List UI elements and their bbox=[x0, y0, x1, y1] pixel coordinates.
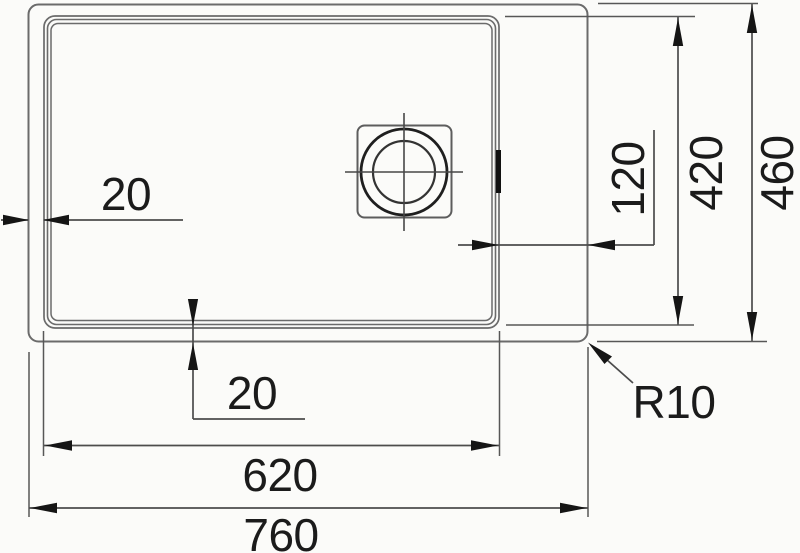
arrowhead bbox=[588, 240, 615, 250]
dim-label-overall-width: 760 bbox=[243, 512, 318, 553]
sink-technical-drawing bbox=[0, 0, 800, 553]
arrowhead bbox=[3, 215, 29, 225]
arrowhead bbox=[188, 343, 198, 370]
dim-label-rim-bottom: 20 bbox=[227, 370, 277, 416]
arrowhead bbox=[30, 503, 57, 513]
dim-label-bowl-height: 420 bbox=[683, 135, 729, 210]
dim-label-rim-left: 20 bbox=[101, 171, 151, 217]
dim-label-bowl-to-edge: 120 bbox=[605, 141, 651, 216]
drain-assembly bbox=[345, 113, 463, 231]
arrowhead bbox=[673, 18, 683, 46]
arrowhead bbox=[673, 296, 683, 324]
arrowhead bbox=[560, 503, 587, 513]
arrowhead bbox=[471, 440, 498, 450]
radius-callout bbox=[588, 343, 633, 384]
arrowhead bbox=[188, 299, 198, 326]
overflow-mark bbox=[496, 150, 501, 193]
dim-label-corner-radius: R10 bbox=[633, 379, 716, 425]
arrowhead bbox=[45, 440, 72, 450]
dimension-bowl-height bbox=[505, 17, 695, 326]
drawing-stage: 20 120 420 460 20 620 760 R10 bbox=[0, 0, 800, 553]
arrowhead bbox=[747, 5, 757, 33]
dim-label-overall-height: 460 bbox=[754, 135, 800, 210]
dim-label-bowl-width: 620 bbox=[242, 452, 317, 498]
arrowhead bbox=[747, 312, 757, 340]
